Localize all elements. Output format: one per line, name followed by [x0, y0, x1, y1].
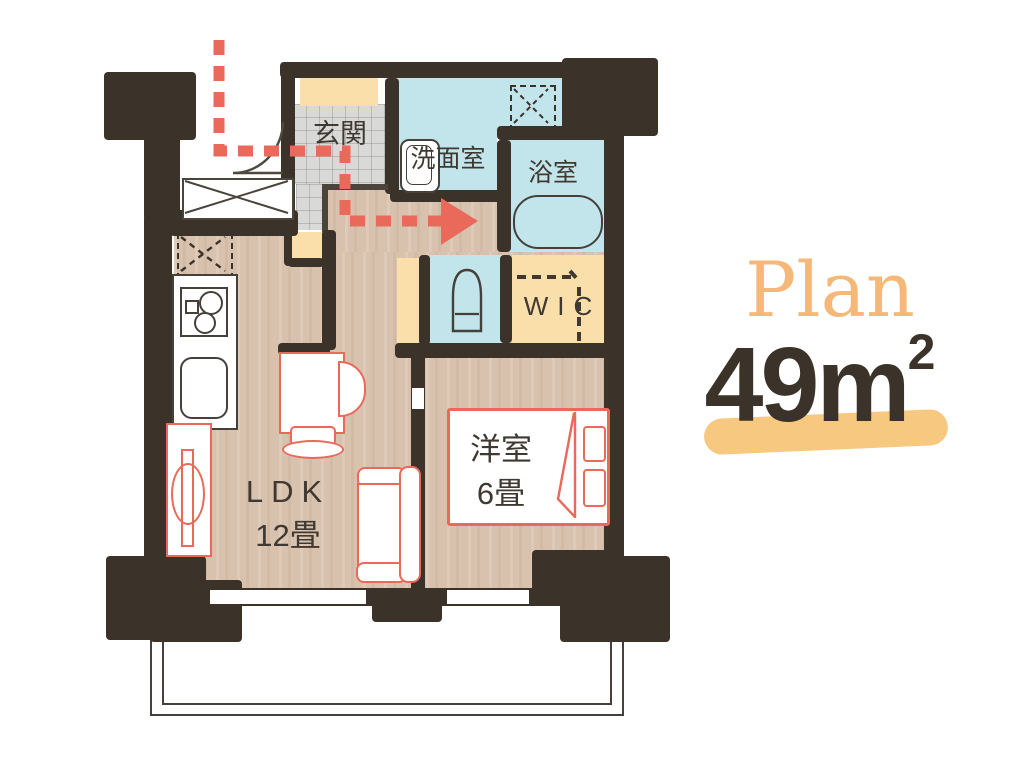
wall-bedroom-top	[395, 343, 608, 358]
entrance-tile-extension	[296, 184, 322, 230]
entrance-step-line	[322, 184, 388, 190]
shoe-cabinet	[300, 78, 378, 106]
plan-area-value: 49m2	[660, 332, 980, 438]
dining-table	[279, 352, 345, 434]
bedroom-label: 洋室	[428, 428, 574, 472]
wall-entrance-washroom	[385, 78, 399, 194]
plan-title: Plan	[700, 252, 960, 328]
wall-right	[604, 108, 624, 606]
wall-divider-foot	[372, 588, 442, 622]
window-ldk	[210, 590, 366, 604]
cabinet-oval	[171, 463, 205, 525]
wall-top	[280, 62, 610, 78]
bed-pillow-1	[583, 426, 606, 462]
ldk-label-block: LDK 12畳	[210, 470, 366, 558]
pillar-bottom-right-b	[560, 556, 670, 642]
bathtub	[513, 195, 603, 249]
wall-closet-bottom	[288, 258, 324, 267]
door-swing-icon	[233, 122, 283, 173]
bathroom-label: 浴室	[507, 158, 599, 189]
entrance-step-line-side	[322, 184, 328, 232]
wall-hall-left	[322, 230, 336, 350]
storage-column	[397, 258, 419, 343]
pillar-top-left	[104, 72, 196, 140]
stove-burner-3	[185, 300, 199, 314]
sofa-backrest	[399, 466, 421, 583]
refrigerator-area-symbol	[177, 233, 233, 279]
window-bedroom	[447, 590, 529, 604]
ldk-size: 12畳	[210, 514, 366, 558]
floor-plan-illustration: 玄関 洗面室 浴室 WIC LDK 12畳 洋室 6畳 Plan 49m2	[0, 0, 1024, 768]
washroom-label: 洗面室	[395, 144, 501, 175]
bedroom-door	[412, 388, 424, 409]
area-exponent: 2	[908, 324, 936, 380]
entrance-label: 玄関	[294, 118, 386, 152]
hall-closet	[292, 232, 322, 258]
wic-label: WIC	[508, 290, 608, 323]
dining-chair-bottom-base	[282, 440, 344, 459]
bedroom-size: 6畳	[428, 472, 574, 516]
washing-machine-area-symbol	[510, 85, 556, 131]
bedroom-label-block: 洋室 6畳	[428, 428, 574, 516]
area-unit: m	[816, 326, 907, 444]
kitchen-sink	[180, 357, 228, 419]
porch-area	[182, 178, 294, 220]
wall-segment	[144, 136, 180, 220]
area-number: 49	[705, 326, 817, 444]
stove-burner-2	[194, 312, 216, 334]
ldk-label: LDK	[210, 470, 366, 514]
wall-toilet-left	[419, 255, 430, 345]
bed-pillow-2	[583, 469, 606, 507]
toilet-floor	[430, 255, 502, 345]
